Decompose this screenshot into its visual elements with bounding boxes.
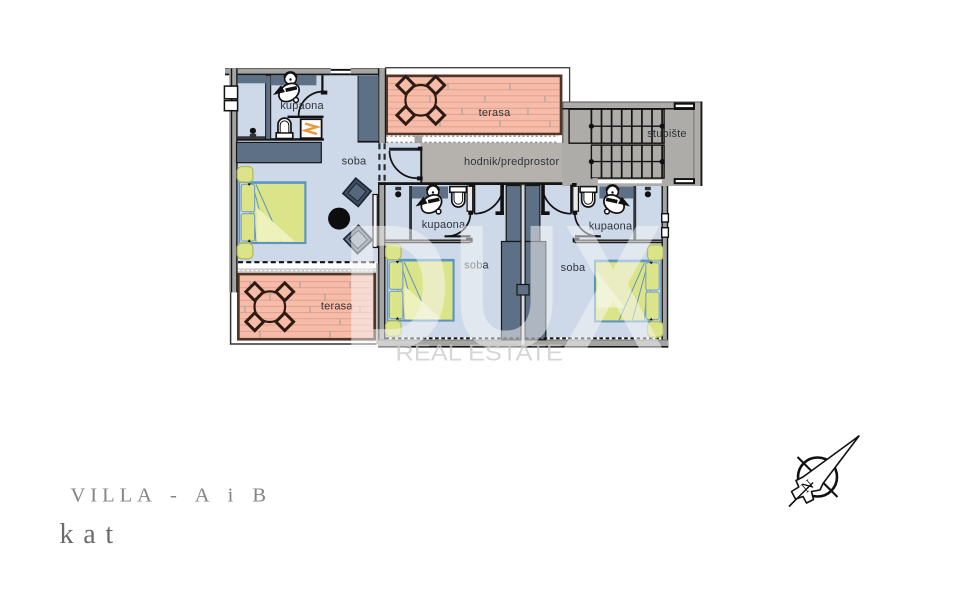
svg-text:soba: soba bbox=[342, 156, 367, 168]
svg-text:VILLA - A i B: VILLA - A i B bbox=[71, 485, 272, 507]
svg-text:kat: kat bbox=[60, 519, 123, 550]
svg-text:hodnik/predprostor: hodnik/predprostor bbox=[464, 156, 559, 168]
svg-text:stubište: stubište bbox=[647, 128, 687, 140]
svg-text:kupaona: kupaona bbox=[280, 100, 324, 112]
svg-text:REAL ESTATE: REAL ESTATE bbox=[396, 340, 564, 366]
svg-text:terasa: terasa bbox=[479, 107, 511, 119]
